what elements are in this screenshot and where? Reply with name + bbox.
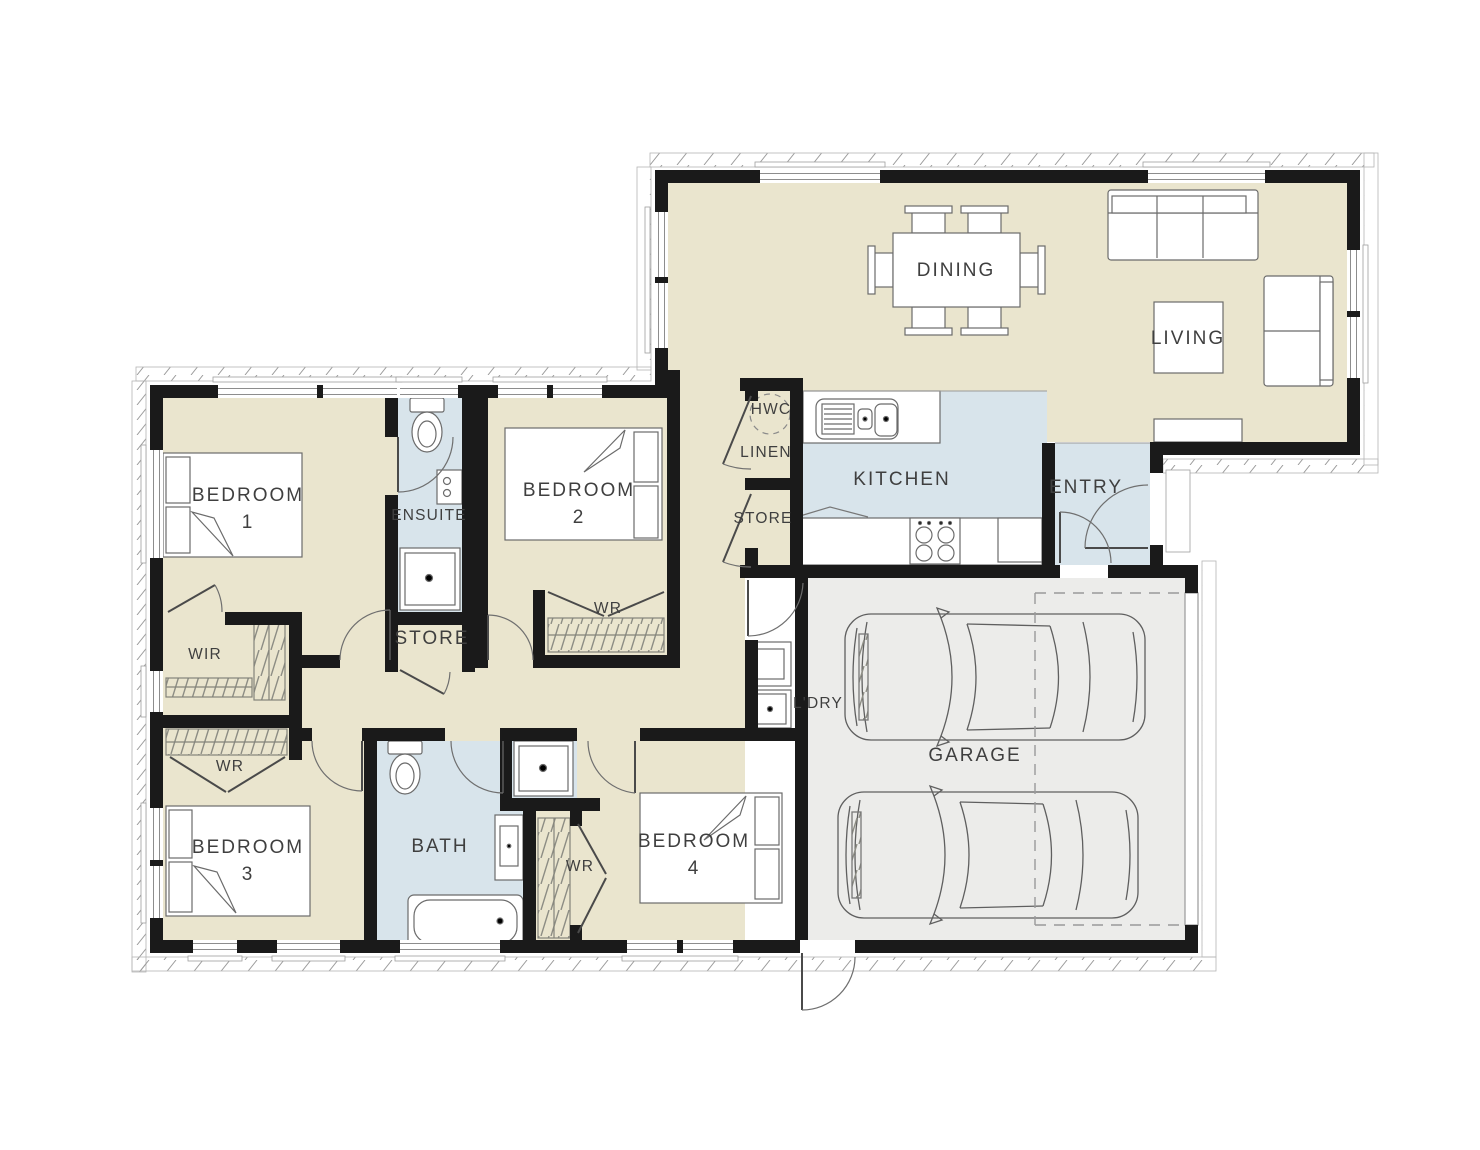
room-label-bath: BATH — [411, 836, 468, 857]
sofa-top-icon — [1108, 190, 1258, 260]
front-porch-step — [1166, 470, 1190, 552]
wir-left-window — [141, 666, 163, 717]
room-number-bedroom2: 2 — [573, 507, 586, 528]
dining-top-window — [755, 162, 885, 183]
dining-left-window — [645, 207, 668, 353]
room-label-entry: ENTRY — [1049, 477, 1123, 498]
room-label-living: LIVING — [1151, 328, 1225, 349]
room-label-store-middle: STORE — [394, 628, 469, 649]
room-number-bedroom1: 1 — [242, 512, 255, 533]
room-label-kitchen: KITCHEN — [853, 469, 950, 490]
room-label-bedroom1: BEDROOM — [192, 485, 304, 506]
room-label-wr-bedroom2: WR — [594, 600, 622, 617]
floor-plan-drawing: DINING LIVING KITCHEN ENTRY HWC LINEN ST… — [0, 0, 1480, 1150]
sofa-right-icon — [1264, 276, 1333, 386]
room-label-store-hall: STORE — [733, 510, 792, 527]
living-right-window — [1347, 245, 1368, 383]
bedroom3-left-window — [141, 803, 163, 923]
bedroom2-top-window — [493, 377, 607, 398]
living-top-window — [1143, 162, 1270, 183]
bedroom4-bottom-window — [622, 940, 738, 961]
room-label-wr-centre: WR — [566, 858, 594, 875]
garage-door-icon — [1185, 593, 1198, 925]
ensuite-window — [396, 377, 462, 398]
room-label-wr-left: WR — [216, 758, 244, 775]
room-label-hwc: HWC — [751, 401, 792, 418]
room-label-linen: LINEN — [740, 444, 792, 461]
bedroom1-top-window — [213, 377, 402, 398]
room-label-wir: WIR — [188, 646, 222, 663]
room-label-dining: DINING — [917, 260, 996, 281]
room-label-garage: GARAGE — [928, 745, 1021, 766]
bedroom3-bottom-window-2 — [272, 940, 345, 961]
room-label-bedroom3: BEDROOM — [192, 837, 304, 858]
bedroom1-left-window — [141, 445, 163, 563]
room-label-ensuite: ENSUITE — [391, 507, 467, 524]
room-label-bedroom2: BEDROOM — [523, 480, 635, 501]
bedroom3-bottom-window-1 — [188, 940, 242, 961]
bath-bottom-window — [395, 940, 505, 961]
ensuite-toilet-icon — [410, 391, 444, 452]
laundry-door — [748, 580, 803, 636]
bath-toilet-icon — [388, 735, 422, 794]
kitchen-bench-icon — [803, 391, 940, 443]
bath-vanity-icon — [495, 815, 523, 880]
floor-plan-page: DINING LIVING KITCHEN ENTRY HWC LINEN ST… — [0, 0, 1480, 1150]
room-number-bedroom4: 4 — [688, 858, 701, 879]
room-label-bedroom4: BEDROOM — [638, 831, 750, 852]
ensuite-basin-icon — [437, 470, 462, 504]
ensuite-shower-icon — [400, 548, 460, 610]
room-label-laundry: L'DRY — [793, 695, 843, 712]
bed3-icon — [166, 806, 310, 916]
room-number-bedroom3: 3 — [242, 864, 255, 885]
tv-cabinet-icon — [1154, 419, 1242, 442]
bath-shower-icon — [514, 741, 573, 796]
